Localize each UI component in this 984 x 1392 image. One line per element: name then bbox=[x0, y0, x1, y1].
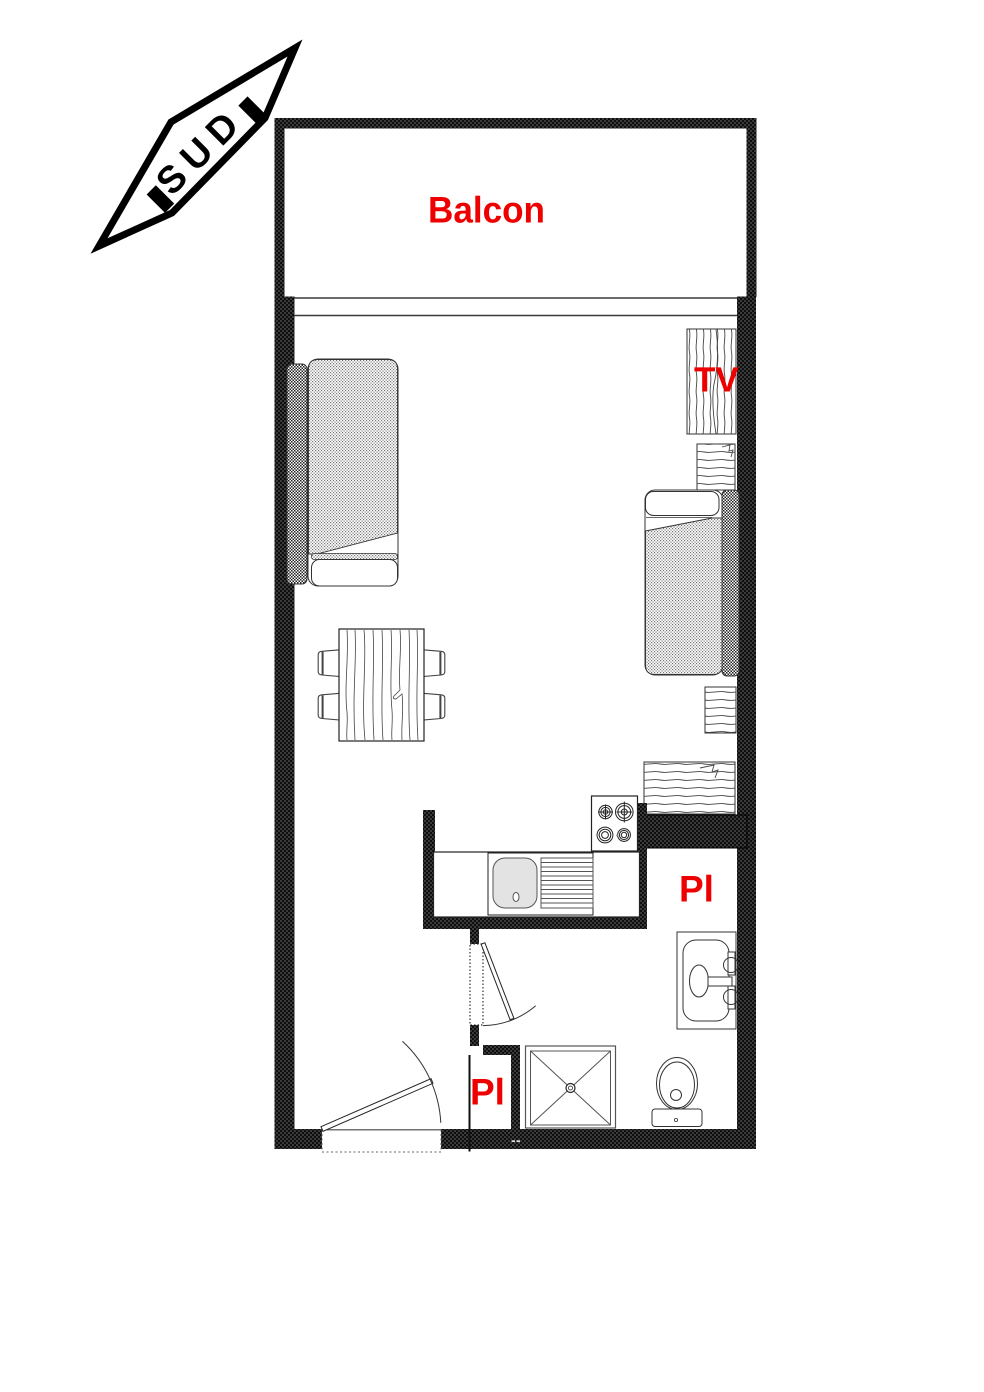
svg-text:Pl: Pl bbox=[470, 1072, 505, 1113]
svg-text:TV: TV bbox=[694, 361, 739, 400]
svg-text:Pl: Pl bbox=[679, 869, 714, 910]
svg-text:Balcon: Balcon bbox=[428, 190, 545, 231]
